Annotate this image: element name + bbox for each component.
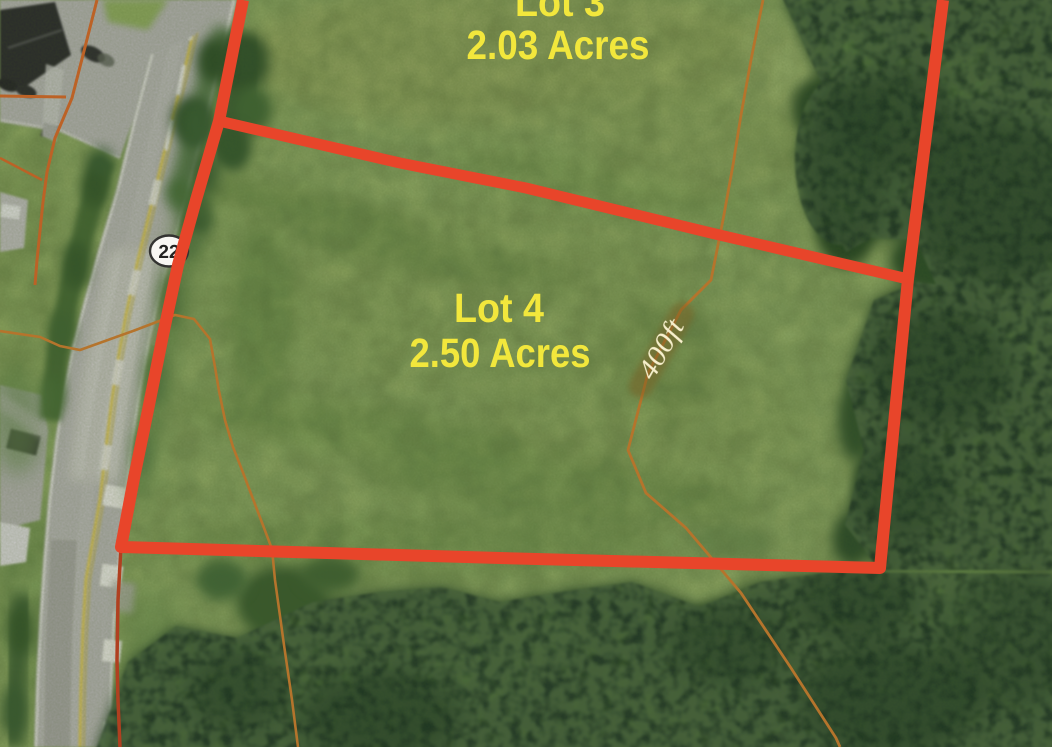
svg-text:2.03 Acres: 2.03 Acres: [467, 22, 650, 68]
svg-text:Lot 4: Lot 4: [454, 285, 544, 331]
svg-text:2.50 Acres: 2.50 Acres: [410, 330, 591, 376]
